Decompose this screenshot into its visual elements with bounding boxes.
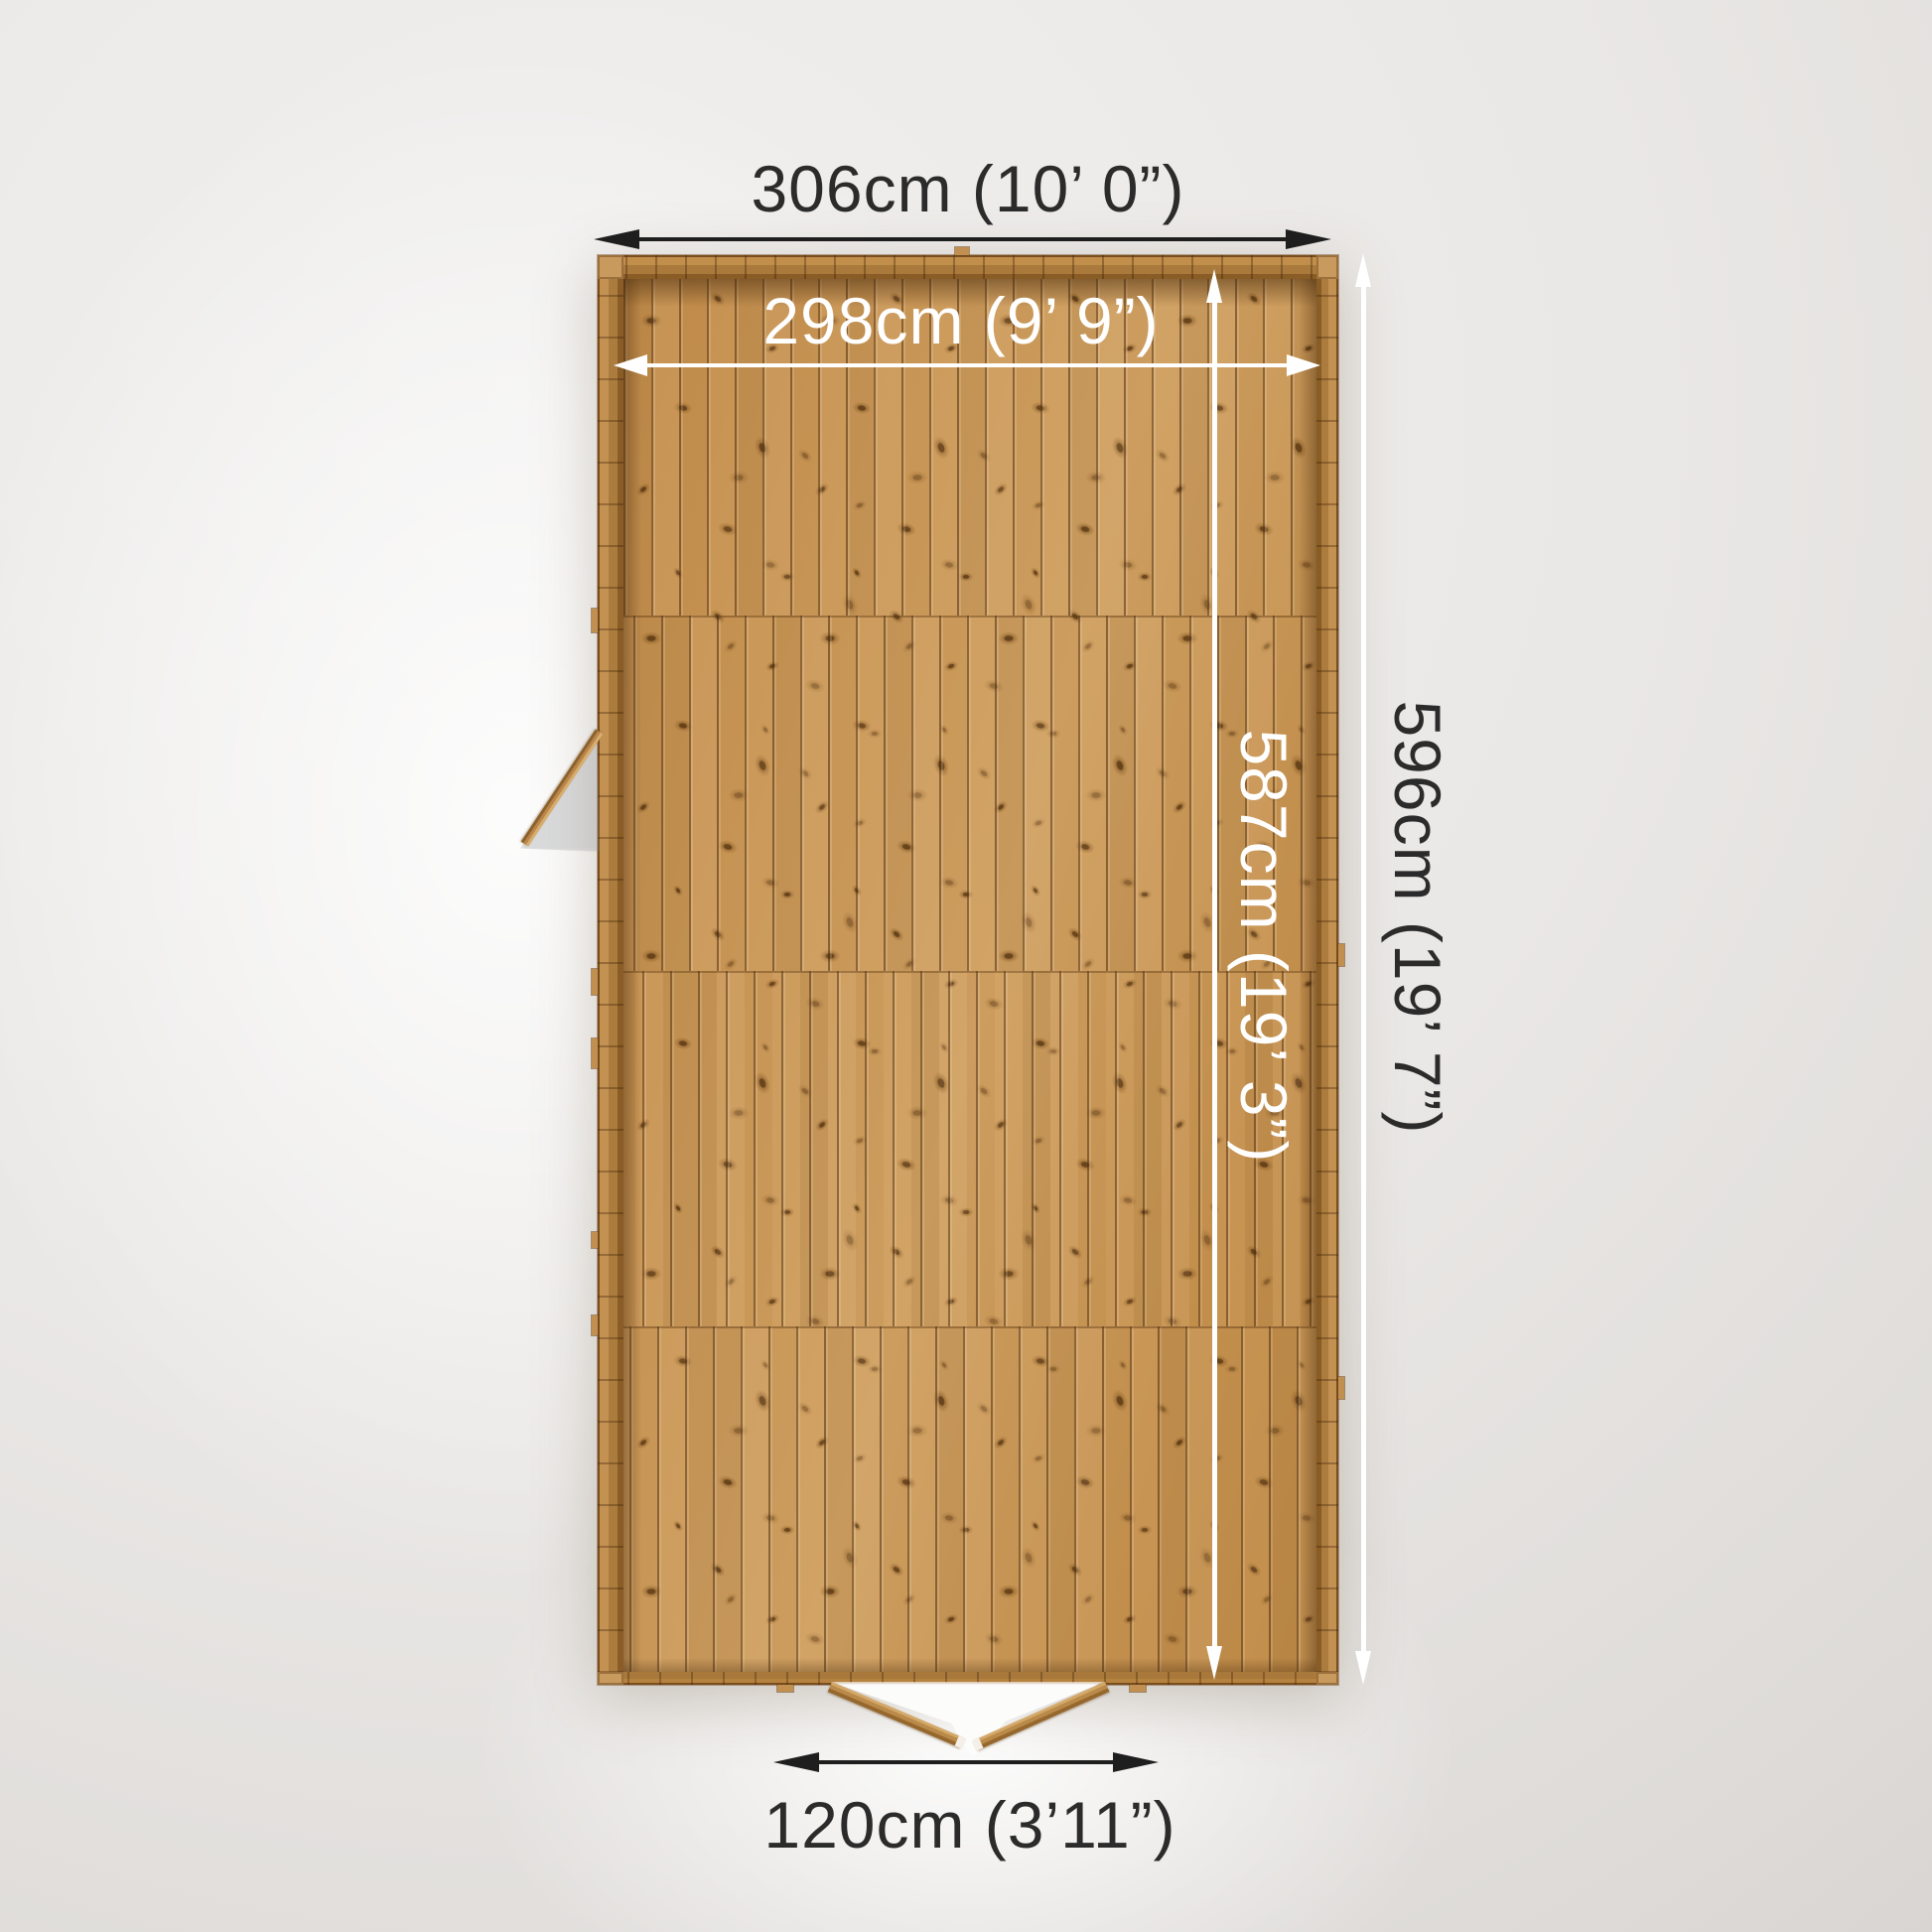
internal-depth-label: 587cm (19’ 3”) (1226, 729, 1302, 1163)
arrowhead-left-icon (773, 1752, 819, 1772)
arrowhead-left-icon (594, 229, 639, 249)
arrowhead-down-icon (1355, 1651, 1371, 1685)
door-width-arrow (773, 1740, 1159, 1784)
arrowhead-right-icon (1286, 229, 1331, 249)
corner-post-bottom-left (598, 1672, 623, 1685)
door-width-label: 120cm (3’11”) (763, 1787, 1175, 1863)
external-width-label: 306cm (10’ 0”) (751, 151, 1184, 226)
arrow-shaft (633, 237, 1292, 241)
frame-tab (592, 1315, 598, 1335)
door-stop-tab (1130, 1685, 1146, 1692)
arrow-shaft (1361, 281, 1366, 1657)
frame-tab (592, 1038, 598, 1068)
arrow-shaft (813, 1760, 1119, 1764)
arrowhead-right-icon (1113, 1752, 1159, 1772)
arrow-shaft (1212, 297, 1217, 1652)
arrowhead-up-icon (1206, 269, 1222, 303)
frame-tab (592, 1232, 598, 1248)
arrowhead-down-icon (1206, 1646, 1222, 1680)
external-depth-arrow (1341, 253, 1385, 1685)
corner-post-bottom-right (1316, 1672, 1338, 1685)
wall-right (1316, 255, 1338, 1685)
frame-tab (592, 609, 598, 632)
shed-dimension-diagram: { "dimensions": { "external_width_label"… (0, 0, 1932, 1932)
arrowhead-up-icon (1355, 253, 1371, 287)
door-stop-tab (777, 1685, 793, 1692)
frame-tab (592, 969, 598, 995)
arrowhead-right-icon (1287, 354, 1320, 376)
internal-width-label: 298cm (9’ 9”) (762, 283, 1159, 358)
wall-left (598, 255, 623, 1685)
arrowhead-left-icon (614, 354, 647, 376)
external-depth-label: 596cm (19’ 7”) (1380, 700, 1455, 1134)
